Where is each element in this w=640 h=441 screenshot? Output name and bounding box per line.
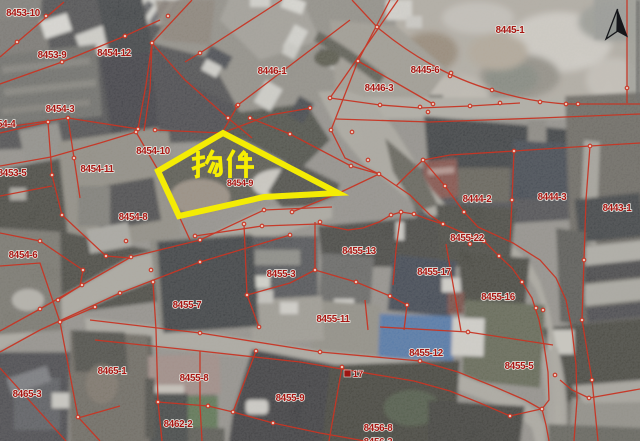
svg-text:8456-8: 8456-8: [364, 423, 394, 434]
svg-text:8454-10: 8454-10: [136, 146, 171, 157]
svg-text:8454-12: 8454-12: [97, 48, 132, 59]
svg-text:8454-3: 8454-3: [46, 104, 76, 115]
svg-text:8455-7: 8455-7: [173, 300, 203, 311]
svg-text:8465-3: 8465-3: [13, 389, 43, 400]
svg-text:8444-3: 8444-3: [538, 192, 568, 203]
svg-text:8453-5: 8453-5: [0, 168, 27, 179]
svg-text:8454-9: 8454-9: [227, 178, 254, 188]
svg-text:8462-2: 8462-2: [164, 419, 194, 430]
svg-text:8444-2: 8444-2: [463, 194, 493, 205]
svg-text:8445-1: 8445-1: [496, 25, 526, 36]
svg-text:8446-1: 8446-1: [258, 66, 288, 77]
svg-text:8445-6: 8445-6: [411, 65, 441, 76]
svg-text:8455-11: 8455-11: [316, 314, 350, 325]
svg-text:8455-13: 8455-13: [342, 246, 377, 257]
svg-text:8454-8: 8454-8: [119, 212, 149, 223]
svg-text:8455-9: 8455-9: [276, 393, 306, 404]
svg-text:8455-5: 8455-5: [505, 361, 535, 372]
svg-text:8454-4: 8454-4: [0, 119, 16, 130]
svg-text:8455-22: 8455-22: [450, 233, 485, 244]
svg-text:8455-17: 8455-17: [417, 267, 452, 278]
svg-text:8455-12: 8455-12: [409, 348, 444, 359]
svg-text:17: 17: [353, 369, 364, 380]
svg-text:8454-11: 8454-11: [80, 164, 114, 175]
svg-text:8455-8: 8455-8: [180, 373, 210, 384]
svg-text:8446-3: 8446-3: [365, 83, 395, 94]
svg-text:8443-1: 8443-1: [603, 203, 633, 214]
svg-text:8455-16: 8455-16: [481, 292, 516, 303]
svg-text:8453-10: 8453-10: [6, 8, 41, 19]
svg-text:8453-9: 8453-9: [38, 50, 68, 61]
svg-text:8456-3: 8456-3: [364, 437, 394, 441]
svg-text:8465-1: 8465-1: [98, 366, 128, 377]
svg-text:8455-3: 8455-3: [267, 269, 297, 280]
svg-text:8454-6: 8454-6: [9, 250, 39, 261]
